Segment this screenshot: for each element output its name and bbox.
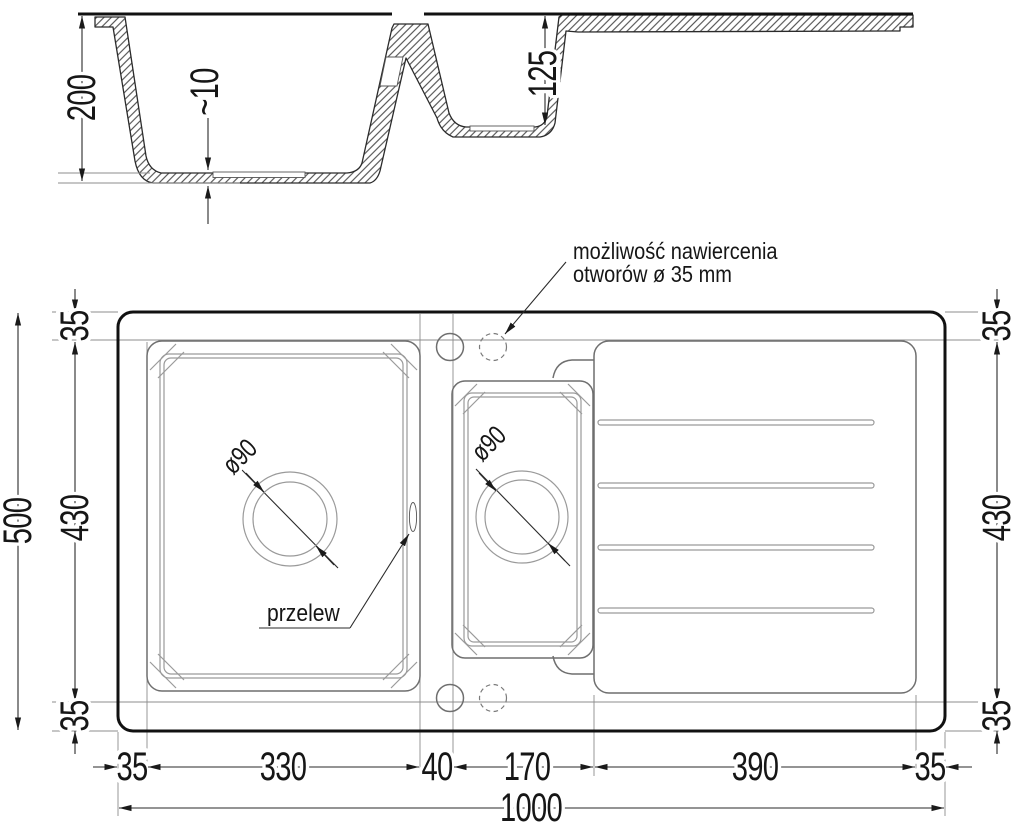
main-drain-label: ø90 (217, 434, 264, 481)
drainer-groove (598, 545, 874, 550)
tap-hole-top-optional (480, 334, 507, 361)
dim-label-10: ~10 (183, 68, 228, 116)
dim-label-35: 35 (116, 745, 147, 790)
small-bowl-corner-facets (455, 384, 590, 655)
drainer-groove (598, 483, 874, 488)
dim-label-40: 40 (421, 745, 452, 790)
overflow-text: przelew (267, 600, 340, 627)
tap-hole-top (437, 334, 464, 361)
dims-right: 35 430 35 (975, 289, 1020, 754)
cross-section-view: 200 ~10 125 (58, 14, 913, 224)
extension-lines (52, 312, 1008, 816)
tap-hole-bottom-optional (480, 685, 507, 712)
dim-label-35: 35 (975, 700, 1020, 731)
main-bowl: ø90 (147, 341, 420, 691)
drill-note-text-line2: otworów ø 35 mm (573, 261, 732, 288)
drainer-groove (598, 608, 874, 613)
dim-label-35: 35 (975, 310, 1020, 341)
tap-ledge-step-top (553, 360, 594, 378)
drainer-outline (594, 341, 916, 693)
small-bowl-drain-recess (470, 126, 534, 131)
dim-label-1000: 1000 (500, 786, 562, 828)
dim-label-170: 170 (504, 745, 551, 790)
dim-floor-thickness: ~10 (183, 68, 228, 224)
dim-label-35: 35 (914, 745, 945, 790)
dim-label-330: 330 (260, 745, 307, 790)
tap-hole-bottom (437, 685, 464, 712)
main-bowl-inner-rim2 (164, 358, 403, 674)
drawing-canvas: 200 ~10 125 (0, 0, 1024, 828)
small-bowl: ø90 (452, 381, 593, 658)
main-bowl-inner-rim (160, 354, 407, 678)
main-bowl-outer-rim (147, 341, 420, 691)
main-bowl-corner-facets (150, 344, 417, 688)
drain-dim-arrow (548, 543, 565, 561)
plan-view: ø90 ø90 (0, 238, 1019, 828)
dim-label-200: 200 (60, 74, 105, 121)
dim-label-125: 125 (521, 51, 566, 98)
overflow-annotation: przelew (259, 534, 409, 628)
dim-label-430: 430 (53, 494, 98, 541)
overflow-slot (409, 503, 416, 532)
main-bowl-drain-recess (213, 172, 305, 178)
drain-dim-arrow (479, 473, 496, 491)
drill-note-leader (505, 262, 566, 334)
dim-label-35: 35 (53, 700, 98, 731)
sink-outline (118, 312, 945, 731)
dim-label-500: 500 (0, 497, 40, 544)
small-drain-label: ø90 (466, 421, 513, 468)
sink-technical-drawing: 200 ~10 125 (0, 0, 1024, 828)
drainer-board (594, 341, 916, 693)
drainer-groove (598, 420, 874, 425)
dim-label-430: 430 (975, 494, 1020, 541)
dim-label-35: 35 (53, 310, 98, 341)
dims-left: 500 35 430 35 (0, 289, 97, 754)
dim-label-390: 390 (732, 745, 779, 790)
dims-bottom: 35 330 40 170 390 35 1000 (93, 745, 972, 828)
overflow-leader (350, 534, 409, 628)
drill-note: możliwość nawiercenia otworów ø 35 mm (505, 238, 778, 334)
small-bowl-outer-rim (452, 381, 593, 658)
